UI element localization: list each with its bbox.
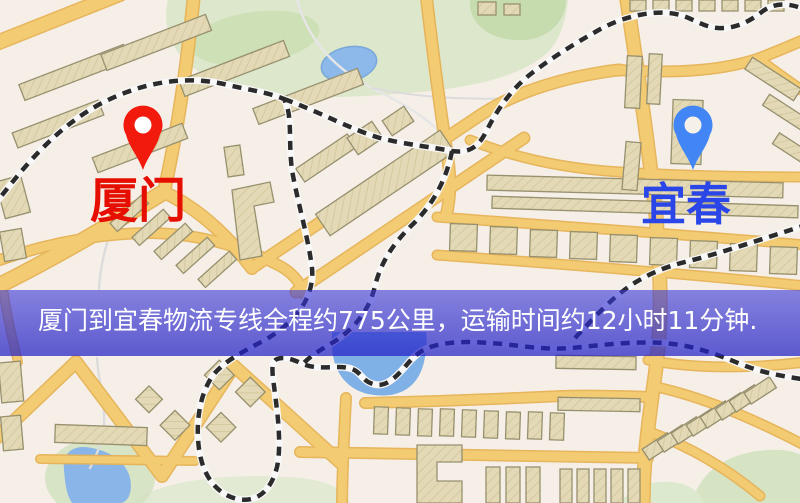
route-info-text: 厦门到宜春物流专线全程约775公里，运输时间约12小时11分钟. <box>0 301 757 337</box>
yichun-pin-icon[interactable] <box>671 102 715 172</box>
yichun-label: 宜春 <box>641 181 731 228</box>
map-canvas <box>0 0 800 503</box>
route-info-banner: 厦门到宜春物流专线全程约775公里，运输时间约12小时11分钟. <box>0 290 800 356</box>
xiamen-label: 厦门 <box>90 176 186 226</box>
xiamen-pin-icon[interactable] <box>121 102 165 172</box>
